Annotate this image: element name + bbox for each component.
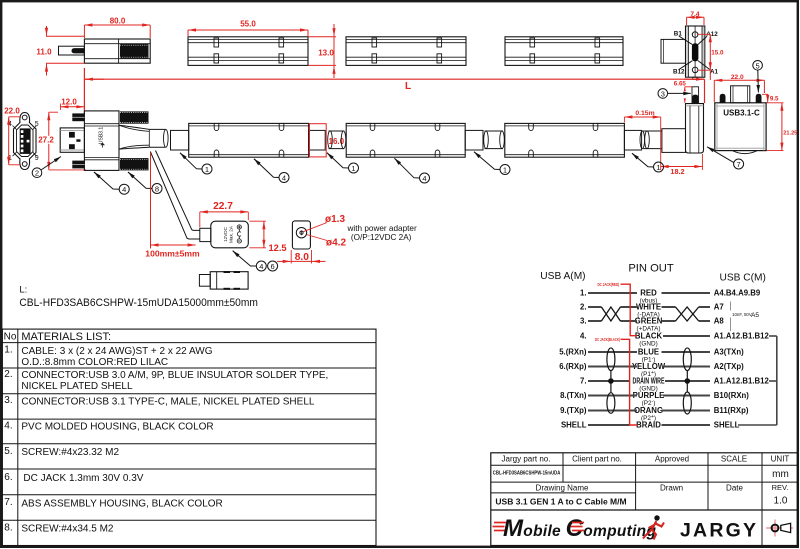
svg-text:O.D.:8.8mm COLOR:RED LILAC: O.D.:8.8mm COLOR:RED LILAC — [21, 357, 168, 368]
svg-text:27.2: 27.2 — [38, 136, 54, 145]
svg-text:A4.B4.A9.B9: A4.B4.A9.B9 — [714, 289, 761, 298]
svg-text:(P2-): (P2-) — [642, 399, 656, 407]
svg-text:7: 7 — [737, 160, 741, 169]
svg-text:UNIT: UNIT — [771, 454, 790, 463]
svg-text:BRAID: BRAID — [636, 421, 661, 430]
svg-text:BLUE: BLUE — [638, 348, 659, 357]
svg-text:DC JACK(BLACK): DC JACK(BLACK) — [595, 337, 620, 342]
svg-text:6.: 6. — [4, 472, 12, 483]
svg-text:SCREW:#4x34.5 M2: SCREW:#4x34.5 M2 — [21, 524, 114, 535]
svg-text:16.0: 16.0 — [329, 137, 345, 146]
svg-text:L:: L: — [19, 285, 27, 296]
svg-text:DRAIN WIRE: DRAIN WIRE — [633, 377, 665, 386]
svg-text:A2(TXp): A2(TXp) — [714, 362, 744, 371]
svg-text:1.0: 1.0 — [774, 495, 788, 506]
svg-text:9: 9 — [35, 155, 39, 162]
svg-text:Drawing Name: Drawing Name — [536, 484, 589, 493]
svg-text:Jargy part no.: Jargy part no. — [502, 454, 551, 463]
svg-text:7.: 7. — [4, 497, 12, 508]
svg-text:7.: 7. — [580, 377, 587, 386]
svg-text:1: 1 — [503, 166, 507, 175]
svg-text:6.(RXp): 6.(RXp) — [559, 362, 587, 371]
svg-text:B10(RXn): B10(RXn) — [714, 391, 749, 400]
svg-text:11.0: 11.0 — [36, 48, 52, 57]
svg-text:22.0: 22.0 — [4, 106, 20, 115]
svg-text:2: 2 — [35, 169, 39, 178]
svg-text:55.0: 55.0 — [240, 20, 256, 29]
svg-text:B12: B12 — [673, 69, 685, 76]
svg-text:ABS ASSEMBLY HOUSING, BLACK CO: ABS ASSEMBLY HOUSING, BLACK COLOR — [21, 498, 222, 509]
svg-text:CBL-HFD3SAB6CSHPW-15mUDA: CBL-HFD3SAB6CSHPW-15mUDA — [493, 470, 561, 476]
svg-text:MATERIALS LIST:: MATERIALS LIST: — [21, 331, 111, 343]
svg-text:3.: 3. — [580, 317, 587, 326]
svg-text:PURPLE: PURPLE — [633, 391, 665, 400]
svg-text:DC JACK 1.3mm 30V 0.3V: DC JACK 1.3mm 30V 0.3V — [23, 473, 143, 484]
svg-text:1: 1 — [351, 164, 355, 173]
svg-text:A1: A1 — [710, 69, 719, 76]
svg-text:2.: 2. — [4, 369, 12, 380]
svg-text:A1.A12.B1.B12: A1.A12.B1.B12 — [714, 377, 770, 386]
svg-text:3: 3 — [661, 89, 665, 98]
svg-text:4: 4 — [259, 262, 263, 271]
svg-text:Client part no.: Client part no. — [572, 454, 622, 463]
svg-text:5: 5 — [756, 61, 760, 70]
svg-text:1.: 1. — [580, 289, 587, 298]
svg-text:1: 1 — [656, 163, 660, 172]
svg-text:7.4: 7.4 — [690, 11, 699, 18]
svg-text:(-DATA): (-DATA) — [637, 311, 659, 318]
svg-text:9.(TXp): 9.(TXp) — [560, 406, 587, 415]
svg-text:4: 4 — [282, 174, 286, 183]
svg-text:NICKEL PLATED SHELL: NICKEL PLATED SHELL — [21, 381, 133, 392]
svg-text:(O/P:12VDC 2A): (O/P:12VDC 2A) — [351, 233, 412, 242]
svg-text:USB3.1-C: USB3.1-C — [723, 108, 760, 117]
svg-text:Max. 2A: Max. 2A — [229, 225, 234, 243]
svg-text:21.25: 21.25 — [783, 130, 797, 136]
svg-text:1: 1 — [205, 165, 209, 174]
svg-text:8.(TXn): 8.(TXn) — [560, 391, 587, 400]
svg-text:0.15m: 0.15m — [635, 110, 654, 117]
svg-text:A8: A8 — [714, 317, 725, 326]
svg-text:ø4.2: ø4.2 — [326, 237, 346, 248]
svg-text:SCALE: SCALE — [721, 455, 747, 464]
svg-text:18.2: 18.2 — [670, 167, 684, 176]
svg-text:8: 8 — [155, 185, 159, 194]
svg-text:(P1+): (P1+) — [641, 370, 656, 378]
svg-text:USB 3.1 GEN 1 A to C Cable M/M: USB 3.1 GEN 1 A to C Cable M/M — [495, 496, 626, 506]
svg-text:4: 4 — [422, 174, 426, 183]
svg-text:Drawn: Drawn — [660, 483, 683, 492]
svg-text:A3(TXn): A3(TXn) — [714, 348, 744, 357]
svg-text:with power adapter: with power adapter — [347, 224, 417, 233]
svg-text:Date: Date — [726, 483, 743, 492]
svg-text:80.0: 80.0 — [110, 17, 126, 26]
svg-text:DC JACK(RED): DC JACK(RED) — [598, 282, 620, 287]
svg-text:22.7: 22.7 — [213, 201, 233, 212]
svg-text:6: 6 — [271, 262, 275, 271]
svg-text:CONNECTOR:USB 3.1 TYPE-C, MALE: CONNECTOR:USB 3.1 TYPE-C, MALE, NICKEL P… — [21, 396, 314, 407]
svg-text:B1: B1 — [674, 31, 683, 38]
svg-text:8.0: 8.0 — [295, 252, 309, 263]
svg-text:4: 4 — [122, 185, 126, 194]
svg-text:2.: 2. — [580, 303, 587, 312]
svg-text:3.: 3. — [4, 395, 12, 406]
svg-text:6.65: 6.65 — [674, 81, 687, 88]
svg-text:SHELL: SHELL — [714, 421, 740, 430]
svg-text:13.0: 13.0 — [318, 49, 334, 58]
svg-text:12VDC: 12VDC — [223, 226, 228, 241]
svg-text:4.: 4. — [580, 332, 587, 341]
svg-text:CONNECTOR:USB 3.0 A/M, 9P, BLU: CONNECTOR:USB 3.0 A/M, 9P, BLUE INSULATO… — [21, 370, 328, 381]
svg-text:(P1-): (P1-) — [642, 355, 656, 363]
svg-text:(GND): (GND) — [639, 340, 657, 347]
svg-text:12.5: 12.5 — [269, 243, 287, 253]
svg-text:(+DATA): (+DATA) — [636, 325, 660, 332]
svg-text:BLACK: BLACK — [635, 332, 663, 341]
svg-text:100mm±5mm: 100mm±5mm — [145, 248, 200, 258]
svg-text:No: No — [4, 332, 17, 343]
svg-text:USB C(M): USB C(M) — [720, 273, 766, 284]
svg-text:A5: A5 — [751, 312, 759, 319]
svg-text:(P2+): (P2+) — [641, 414, 656, 422]
svg-text:9.5: 9.5 — [770, 96, 779, 103]
svg-text:CABLE: 3 x (2 x 24 AWG)ST + 2: CABLE: 3 x (2 x 24 AWG)ST + 2 x 22 AWG — [21, 346, 212, 357]
svg-text:A1.A12.B1.B12: A1.A12.B1.B12 — [714, 332, 770, 341]
svg-text:CBL-HFD3SAB6CSHPW-15mUDA15000m: CBL-HFD3SAB6CSHPW-15mUDA15000mm±50mm — [19, 297, 258, 309]
svg-text:Mobile Computing: Mobile Computing — [503, 515, 656, 542]
svg-text:SHELL: SHELL — [561, 421, 587, 430]
svg-text:15.0: 15.0 — [711, 49, 724, 56]
svg-text:REV.: REV. — [772, 483, 789, 492]
svg-text:USB A(M): USB A(M) — [540, 271, 585, 282]
svg-text:5.: 5. — [4, 446, 12, 457]
svg-text:8.: 8. — [4, 522, 12, 533]
svg-text:Approved: Approved — [655, 454, 689, 463]
svg-text:B11(RXp): B11(RXp) — [714, 406, 749, 415]
svg-text:mm: mm — [772, 469, 789, 480]
svg-text:PIN OUT: PIN OUT — [628, 263, 674, 275]
svg-text:SCREW:#4x23.32 M2: SCREW:#4x23.32 M2 — [21, 447, 119, 458]
svg-text:4.: 4. — [4, 421, 12, 432]
svg-text:PVC MOLDED HOUSING, BLACK COLO: PVC MOLDED HOUSING, BLACK COLOR — [21, 422, 213, 433]
svg-text:5.(RXn): 5.(RXn) — [559, 348, 587, 357]
svg-text:ORANG: ORANG — [634, 406, 663, 415]
svg-text:(vbus): (vbus) — [640, 297, 658, 304]
svg-text:RED: RED — [640, 289, 657, 298]
svg-text:JARGY: JARGY — [680, 520, 758, 542]
svg-text:L: L — [405, 81, 411, 92]
svg-text:ø1.3: ø1.3 — [325, 214, 345, 225]
svg-text:A7: A7 — [714, 303, 724, 312]
svg-text:(GND): (GND) — [639, 385, 657, 392]
svg-text:10nF, 50V: 10nF, 50V — [732, 312, 752, 317]
svg-text:1.: 1. — [4, 345, 12, 356]
svg-text:USB3.1: USB3.1 — [99, 127, 105, 144]
svg-text:12.0: 12.0 — [61, 98, 77, 107]
